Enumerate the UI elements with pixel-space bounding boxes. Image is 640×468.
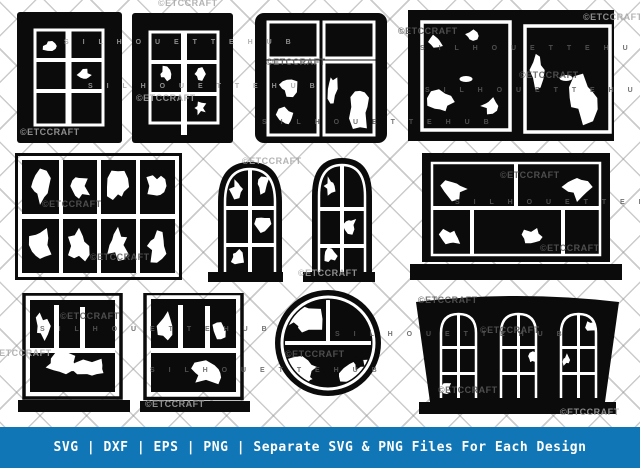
watermark-brand: ©ETCCRAFT xyxy=(90,252,150,262)
watermark-brand: ©ETCCRAFT xyxy=(285,349,345,359)
watermark-brand: ©ETCCRAFT xyxy=(298,268,358,278)
watermark-brand: ©ETCCRAFT xyxy=(242,156,302,166)
footer-formats-text: SVG | DXF | EPS | PNG | Separate SVG & P… xyxy=(54,440,587,455)
watermark-hub: S I L H O U E T T E H U B xyxy=(88,83,321,90)
watermark-brand: ©ETCCRAFT xyxy=(500,170,560,180)
watermark-brand: ©ETCCRAFT xyxy=(266,57,326,67)
broken-window-silhouette-12 xyxy=(410,288,625,414)
watermark-brand: ©ETCCRAFT xyxy=(438,385,498,395)
watermark-brand: ©ETCCRAFT xyxy=(136,93,196,103)
watermark-hub: S I L H O U E T T E H U B xyxy=(64,39,297,46)
broken-window-silhouette-6 xyxy=(208,162,283,282)
broken-window-silhouette-11 xyxy=(272,289,384,397)
watermark-brand: ©ETCCRAFT xyxy=(145,399,205,409)
watermark-hub: S I L H O U E T T E H U B xyxy=(40,326,273,333)
watermark-brand: ©ETCCRAFT xyxy=(418,295,478,305)
watermark-brand: ©ETCCRAFT xyxy=(519,70,579,80)
watermark-brand: ©ETCCRAFT xyxy=(0,348,52,358)
watermark-hub: S I L H O U E T T E H U B xyxy=(335,331,568,338)
clipart-preview-sheet: ©ETCCRAFT ©ETCCRAFT ©ETCCRAFT ©ETCCRAFT … xyxy=(0,0,640,468)
watermark-hub: S I L H O U E T T E H U B xyxy=(262,119,495,126)
watermark-brand: ©ETCCRAFT xyxy=(560,407,620,417)
watermark-brand: ©ETCCRAFT xyxy=(42,199,102,209)
watermark-hub: S I L H O U E T T E H U B xyxy=(455,199,640,206)
watermark-brand: ©ETCCRAFT xyxy=(158,0,218,8)
watermark-brand: ©ETCCRAFT xyxy=(540,243,600,253)
broken-window-silhouette-7 xyxy=(303,158,375,282)
broken-window-silhouette-2 xyxy=(132,13,233,143)
watermark-brand: ©ETCCRAFT xyxy=(20,127,80,137)
watermark-brand: ©ETCCRAFT xyxy=(398,26,458,36)
watermark-hub: S I L H O U E T T E H U B xyxy=(425,87,640,94)
footer-formats-bar: SVG | DXF | EPS | PNG | Separate SVG & P… xyxy=(0,427,640,468)
broken-window-silhouette-1 xyxy=(17,12,122,143)
watermark-hub: S I L H O U E T T E H U B xyxy=(420,45,640,52)
watermark-brand: ©ETCCRAFT xyxy=(583,12,640,22)
watermark-hub: S I L H O U E T T E H U B xyxy=(150,367,383,374)
broken-window-silhouette-10 xyxy=(138,293,250,412)
watermark-brand: ©ETCCRAFT xyxy=(60,311,120,321)
